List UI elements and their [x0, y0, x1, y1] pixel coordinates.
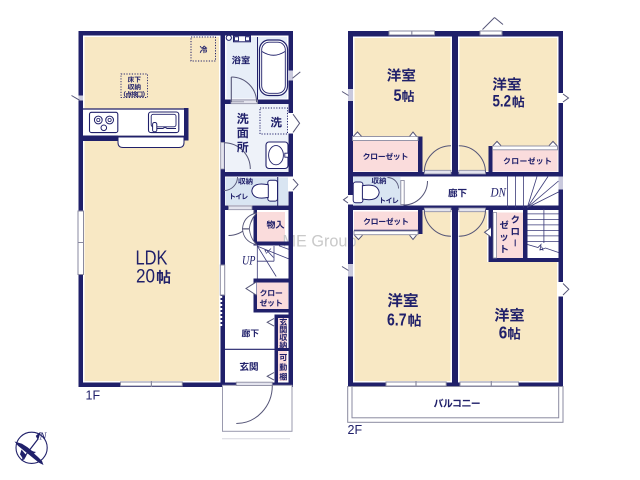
- svg-text:6.7: 6.7: [387, 310, 407, 330]
- svg-text:DN: DN: [490, 186, 507, 200]
- svg-text:UP: UP: [242, 254, 256, 268]
- svg-text:ME Group: ME Group: [283, 233, 357, 251]
- svg-text:1F: 1F: [86, 389, 101, 403]
- svg-text:20: 20: [136, 266, 155, 288]
- svg-text:2F: 2F: [348, 423, 363, 437]
- svg-text:5.2: 5.2: [493, 92, 512, 111]
- svg-text:5: 5: [394, 86, 402, 105]
- svg-text:6: 6: [499, 323, 508, 343]
- svg-text:N: N: [39, 432, 48, 443]
